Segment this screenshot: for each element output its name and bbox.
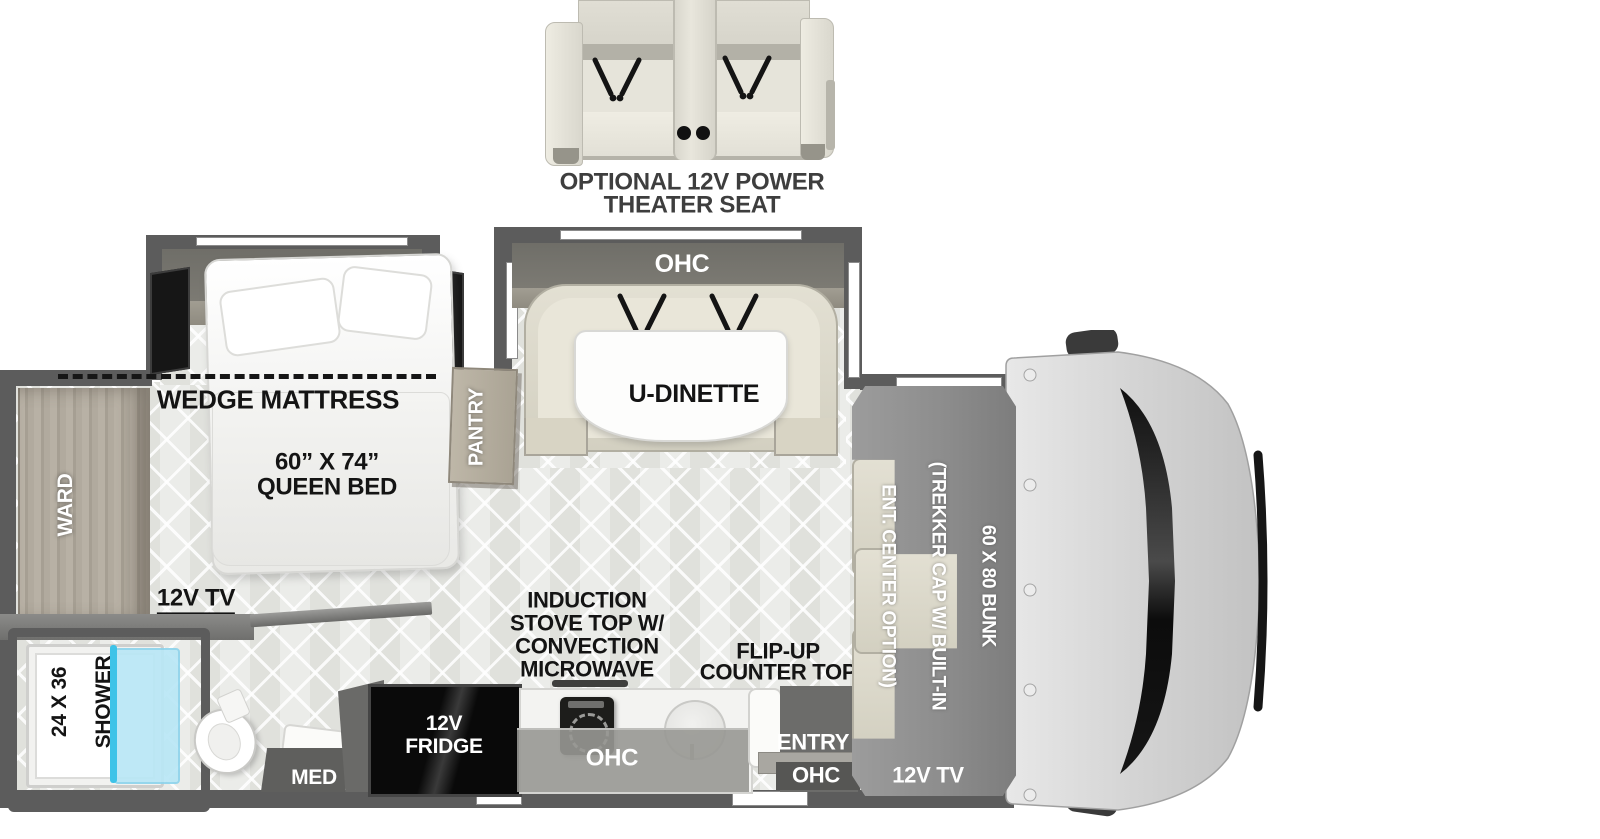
theater-seat-foot	[801, 144, 825, 160]
cap-rivet-icon	[1024, 789, 1036, 801]
cap-rivet-icon	[1024, 369, 1036, 381]
fridge-label-line1: 12V	[426, 713, 462, 735]
theater-armrest-edge	[826, 80, 835, 150]
bedroom-window-left	[150, 267, 190, 375]
fridge-label-line2: FRIDGE	[405, 736, 483, 758]
pantry-label: PANTRY	[467, 388, 488, 466]
bunk-option-text-line2: ENT. CENTER OPTION)	[878, 484, 899, 687]
cap-rivet-icon	[1024, 584, 1036, 596]
front-side-window	[848, 262, 860, 378]
bunk-label: 60 X 80 BUNK (TREKKER CAP W/ BUILT-IN EN…	[851, 442, 1026, 711]
bedroom-tv-label: 12V TV	[157, 585, 235, 616]
seatbelt-icon	[589, 56, 645, 104]
bunk-size-text: 60 X 80 BUNK	[978, 525, 999, 647]
wardrobe	[18, 388, 150, 622]
flip-up-label-line2: COUNTER TOP	[700, 660, 856, 683]
theater-seat-label-line2: THEATER SEAT	[604, 192, 781, 217]
cap-rivet-icon	[1024, 479, 1036, 491]
dinette-ohc-label: OHC	[655, 251, 710, 277]
bed-type-label: QUEEN BED	[257, 474, 397, 499]
stove-label-line1: INDUCTION	[527, 588, 647, 611]
stove-label-line4: MICROWAVE	[520, 657, 654, 680]
theater-seat-figure	[545, 0, 835, 170]
cupholder-icon	[696, 126, 710, 140]
u-dinette-bench-arm-right	[774, 418, 838, 456]
bunk-option-text-line1: (TREKKER CAP W/ BUILT-IN	[928, 462, 949, 711]
u-dinette-label: U-DINETTE	[629, 381, 760, 407]
seatbelt-icon	[719, 54, 775, 102]
rv-floorplan: OPTIONAL 12V POWER THEATER SEAT OHC WEDG…	[0, 0, 1600, 839]
entry-label: ENTRY	[777, 730, 849, 753]
shower-label: 24 X 36 SHOWER	[27, 656, 137, 771]
bed-size-label: 60” X 74”	[275, 449, 379, 474]
cupholder-icon	[677, 126, 691, 140]
wedge-mattress-fold-line	[58, 374, 436, 379]
bedroom-slide-top-window	[196, 237, 408, 246]
wedge-mattress-label: WEDGE MATTRESS	[157, 386, 399, 413]
bunk-tv-label: 12V TV	[892, 763, 964, 786]
stove-label-line3: CONVECTION	[515, 634, 659, 657]
med-cabinet-label: MED	[291, 767, 337, 789]
shower-size-text: 24 X 36	[48, 667, 71, 737]
cab-front	[1000, 330, 1270, 830]
dinette-slide-top-window	[560, 230, 802, 240]
entry-ohc-label: OHC	[792, 763, 840, 786]
kitchen-ohc-label: OHC	[586, 745, 638, 770]
u-dinette-bench-arm-left	[524, 418, 588, 456]
theater-armrest-left	[545, 22, 583, 166]
cap-rivet-icon	[1024, 684, 1036, 696]
theater-seat-foot	[553, 148, 579, 164]
cab-front-grille	[1258, 455, 1263, 707]
shower-text: SHOWER	[92, 656, 115, 749]
bed-pillow	[336, 265, 433, 341]
wardrobe-label: WARD	[55, 474, 77, 537]
stove-label-line2: STOVE TOP W/	[510, 611, 664, 634]
